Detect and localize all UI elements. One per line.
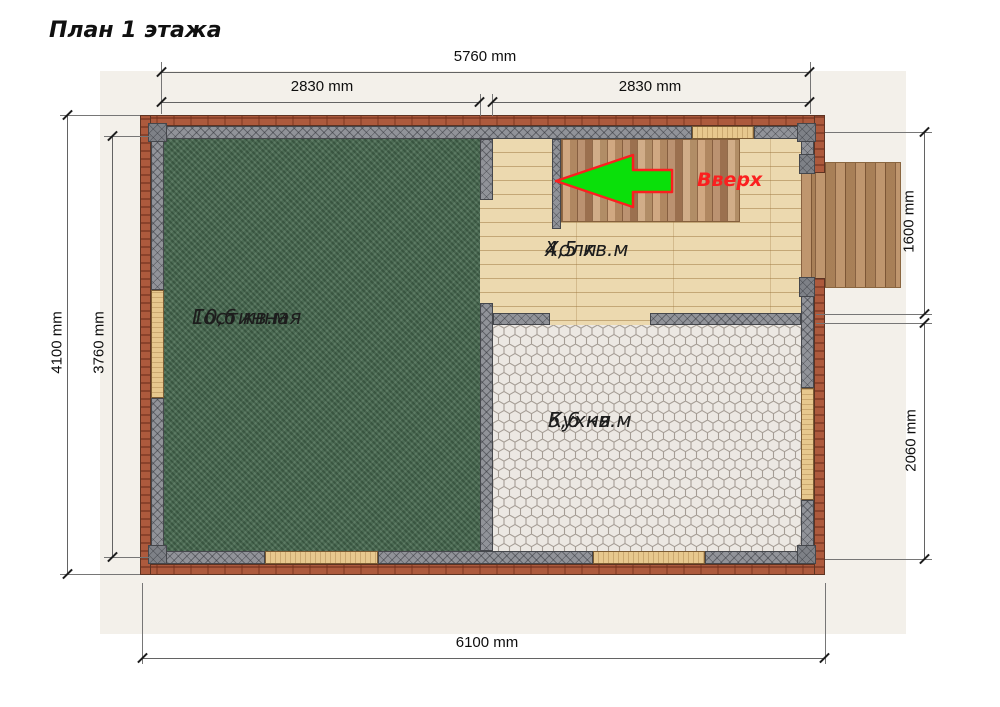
wall-inner-bottom-2 [378, 551, 593, 564]
window-top [692, 126, 754, 139]
floor-plan-canvas: План 1 этажа [0, 0, 1000, 707]
dim-label-right-upper: 1600 mm [901, 172, 918, 272]
wall-inner-left-lower [151, 398, 164, 564]
dim-label-left-inner: 3760 mm [91, 293, 108, 393]
extension-line [825, 132, 932, 133]
partition-hall-kitchen-right [650, 313, 801, 325]
dimension-line-top-right [492, 102, 810, 103]
wall-brick-top [140, 115, 825, 126]
room-kitchen-floor [493, 325, 801, 551]
stairs-up-arrow-icon [548, 150, 678, 212]
wall-corner-post-bl [148, 545, 167, 564]
room-hall-area: 4,5 кв.м [545, 235, 628, 263]
window-right [801, 388, 814, 500]
dimension-line-right-lower [924, 323, 925, 559]
dim-label-top-total: 5760 mm [425, 48, 545, 65]
dimension-line-right-upper [924, 132, 925, 314]
porch-doorway [801, 173, 815, 278]
dim-label-right-lower: 2060 mm [903, 391, 920, 491]
window-bottom-left [265, 551, 378, 564]
dimension-line-top-total [161, 72, 810, 73]
extension-line [816, 323, 932, 324]
stairs-up-label: Вверх [697, 169, 762, 191]
dim-label-top-right: 2830 mm [590, 78, 710, 95]
wall-brick-left [140, 115, 151, 575]
extension-line [825, 559, 932, 560]
room-living-area: 10,6 кв.м [192, 303, 288, 331]
porch-door-post-top [799, 154, 815, 174]
wall-inner-top-left [151, 126, 692, 139]
extension-line [492, 94, 493, 116]
dim-label-bottom-total: 6100 mm [427, 634, 547, 651]
window-bottom-right [593, 551, 705, 564]
extension-line [825, 583, 826, 664]
partition-living-hall-upper [480, 139, 493, 200]
wall-corner-post-tl [148, 123, 167, 142]
room-kitchen-area: 5,6 кв.м [548, 406, 631, 434]
wall-corner-post-br [797, 545, 816, 564]
extension-line [142, 583, 143, 664]
extension-line [60, 115, 140, 116]
dimension-line-top-left [161, 102, 480, 103]
dimension-line-left-outer [67, 115, 68, 574]
extension-line [60, 574, 140, 575]
page-title: План 1 этажа [49, 18, 222, 43]
extension-line [816, 314, 932, 315]
porch-deck [814, 162, 901, 288]
window-left [151, 290, 164, 398]
dimension-line-left-inner [112, 136, 113, 557]
porch-door-post-bottom [799, 277, 815, 297]
wall-brick-bottom [140, 564, 825, 575]
dim-label-left-outer: 4100 mm [49, 293, 66, 393]
partition-hall-kitchen-left [493, 313, 550, 325]
partition-living-kitchen [480, 303, 493, 551]
wall-corner-post-tr [797, 123, 816, 142]
dim-label-top-left: 2830 mm [262, 78, 382, 95]
room-living-floor [164, 139, 480, 551]
wall-inner-left-upper [151, 126, 164, 290]
dimension-line-bottom-total [142, 658, 825, 659]
wall-inner-bottom-1 [151, 551, 265, 564]
